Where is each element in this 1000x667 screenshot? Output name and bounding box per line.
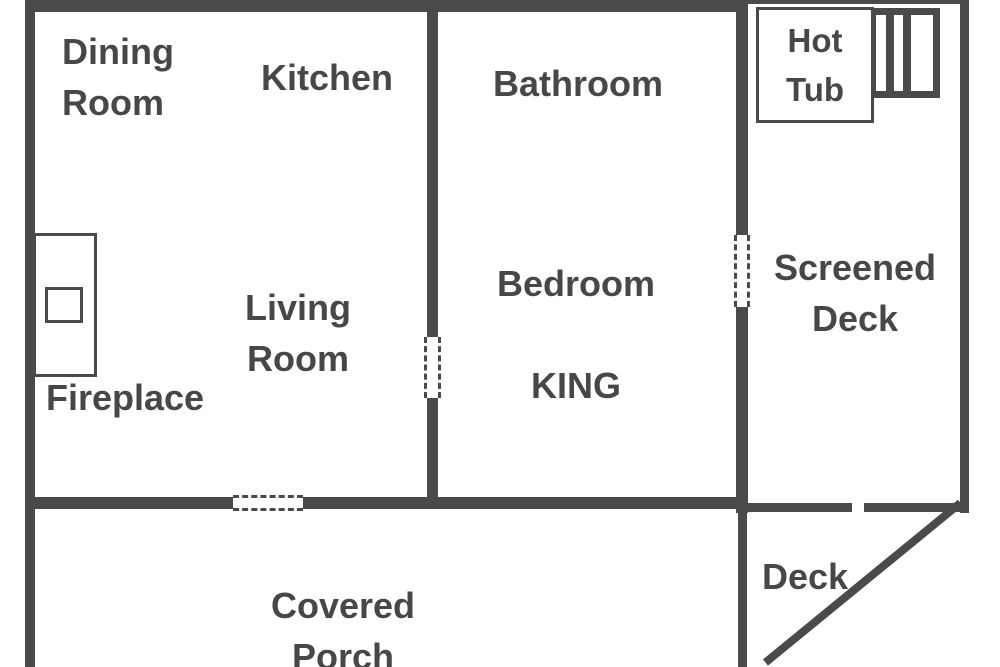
wall-right-screened-deck — [960, 0, 969, 513]
kitchen-label: Kitchen — [257, 52, 397, 103]
screened-deck-label: Screened Deck — [750, 242, 960, 344]
door-screened-deck-opening — [734, 235, 750, 307]
dining-room-label: Dining Room — [62, 26, 174, 128]
covered-porch-label: Covered Porch — [218, 580, 468, 667]
wall-kitchen-bathroom-divider — [427, 0, 438, 509]
bed-type-label: KING — [471, 360, 681, 411]
wall-top-screened-deck — [748, 0, 969, 4]
stair-step-icon — [886, 15, 894, 91]
bathroom-label: Bathroom — [478, 58, 678, 109]
bedroom-label: Bedroom — [471, 258, 681, 309]
fireplace-label: Fireplace — [46, 372, 204, 423]
stair-step-icon — [903, 15, 911, 91]
wall-bottom-deck-dashed-section — [830, 503, 886, 512]
door-living-bedroom-opening — [424, 337, 441, 398]
floor-plan: Hot Tub Dining Room Kitchen Bathroom Liv… — [0, 0, 1000, 667]
hot-tub-box: Hot Tub — [756, 7, 874, 123]
hot-tub-label: Hot Tub — [786, 16, 844, 115]
door-porch-opening — [233, 495, 303, 511]
deck-label: Deck — [705, 551, 905, 602]
wall-top-main — [25, 0, 748, 12]
wall-bottom-main — [25, 497, 748, 509]
stairs-icon — [873, 8, 940, 98]
wall-bottom-deck-left — [748, 503, 830, 512]
living-room-label: Living Room — [193, 282, 403, 384]
fireplace-firebox-icon — [45, 287, 83, 323]
